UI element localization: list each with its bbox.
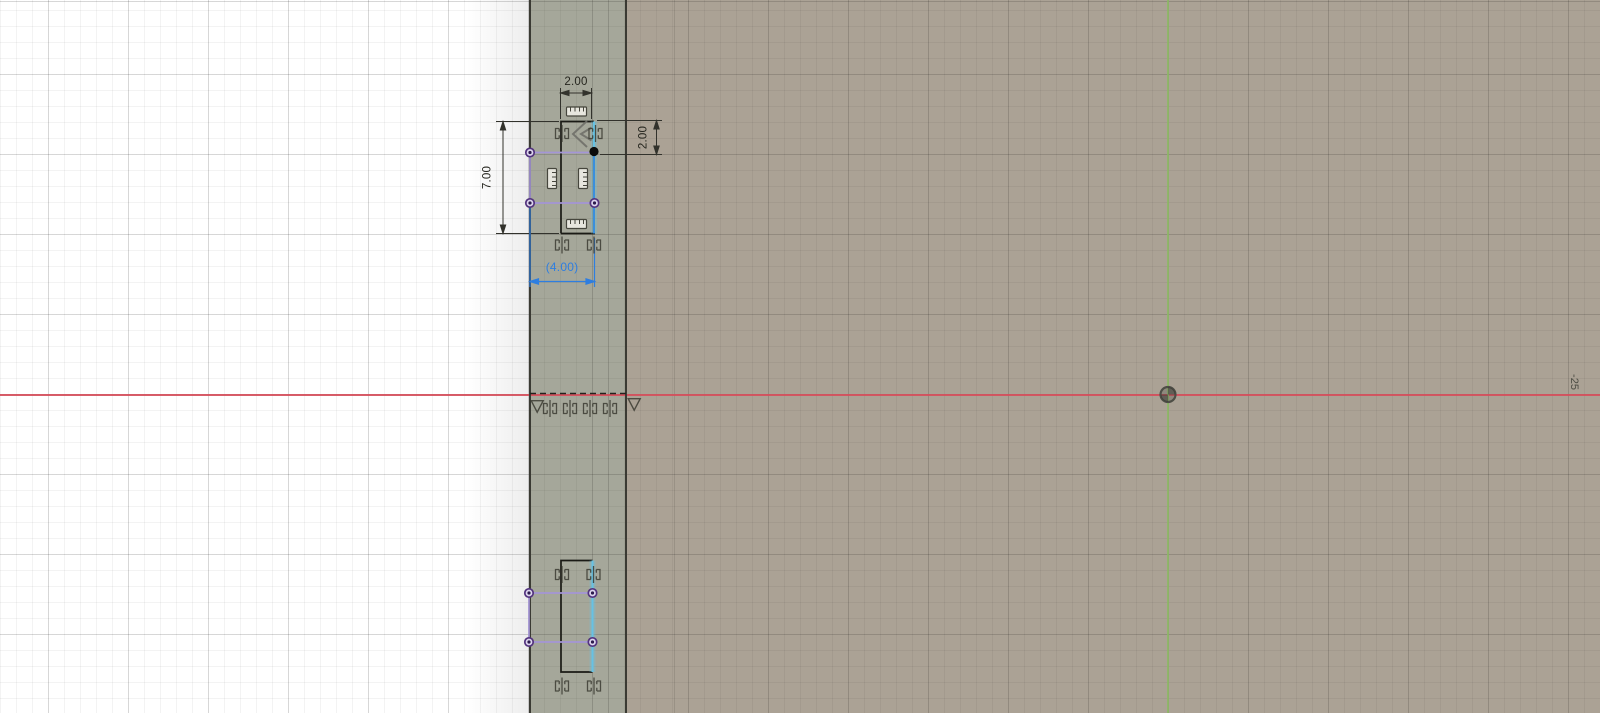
collinear-constraint-icon[interactable] [567, 220, 587, 229]
sketch-overlay [0, 0, 1600, 713]
top-sketch-profile[interactable] [496, 88, 662, 287]
sketch-point[interactable] [526, 199, 534, 207]
sketch-canvas[interactable]: 2.00 7.00 2.00 (4.00) -25 [0, 0, 1600, 713]
symmetry-constraint-icon[interactable] [556, 125, 569, 142]
symmetry-constraint-icon[interactable] [564, 400, 577, 417]
sketch-point[interactable] [590, 199, 598, 207]
sketch-point[interactable] [525, 589, 533, 597]
midpoint-constraint-icon[interactable] [531, 401, 543, 413]
sketch-point[interactable] [525, 638, 533, 646]
symmetry-constraint-icon[interactable] [588, 678, 601, 695]
symmetry-constraint-icon[interactable] [556, 678, 569, 695]
axis-constraint-row[interactable] [531, 399, 640, 417]
sketch-point[interactable] [526, 148, 534, 156]
selected-point[interactable] [589, 147, 598, 156]
sketch-point[interactable] [588, 589, 596, 597]
dimension-label-bottom-width-driven[interactable]: (4.00) [539, 261, 585, 274]
sketch-line-black[interactable] [561, 561, 593, 673]
symmetry-constraint-icon[interactable] [556, 566, 569, 583]
collinear-constraint-icon[interactable] [567, 107, 587, 116]
sketch-point[interactable] [588, 638, 596, 646]
midpoint-constraint-icon[interactable] [628, 399, 640, 411]
dimension-label-left-height[interactable]: 7.00 [482, 161, 495, 195]
symmetry-constraint-icon[interactable] [588, 237, 601, 254]
symmetry-constraint-icon[interactable] [604, 400, 617, 417]
dimension-right-height[interactable] [597, 121, 662, 155]
collinear-constraint-icon[interactable] [579, 169, 588, 189]
symmetry-constraint-icon[interactable] [556, 237, 569, 254]
dimension-label-right-height[interactable]: 2.00 [638, 121, 651, 155]
symmetry-constraint-icon[interactable] [587, 566, 600, 583]
dimension-label-top-width[interactable]: 2.00 [560, 76, 592, 89]
symmetry-constraint-icon[interactable] [544, 400, 557, 417]
bottom-sketch-profile[interactable] [525, 561, 601, 695]
grid-coordinate-label: -25 [1568, 367, 1580, 397]
origin-icon[interactable] [1161, 387, 1176, 402]
collinear-constraint-icon[interactable] [548, 169, 557, 189]
symmetry-constraint-icon[interactable] [584, 400, 597, 417]
